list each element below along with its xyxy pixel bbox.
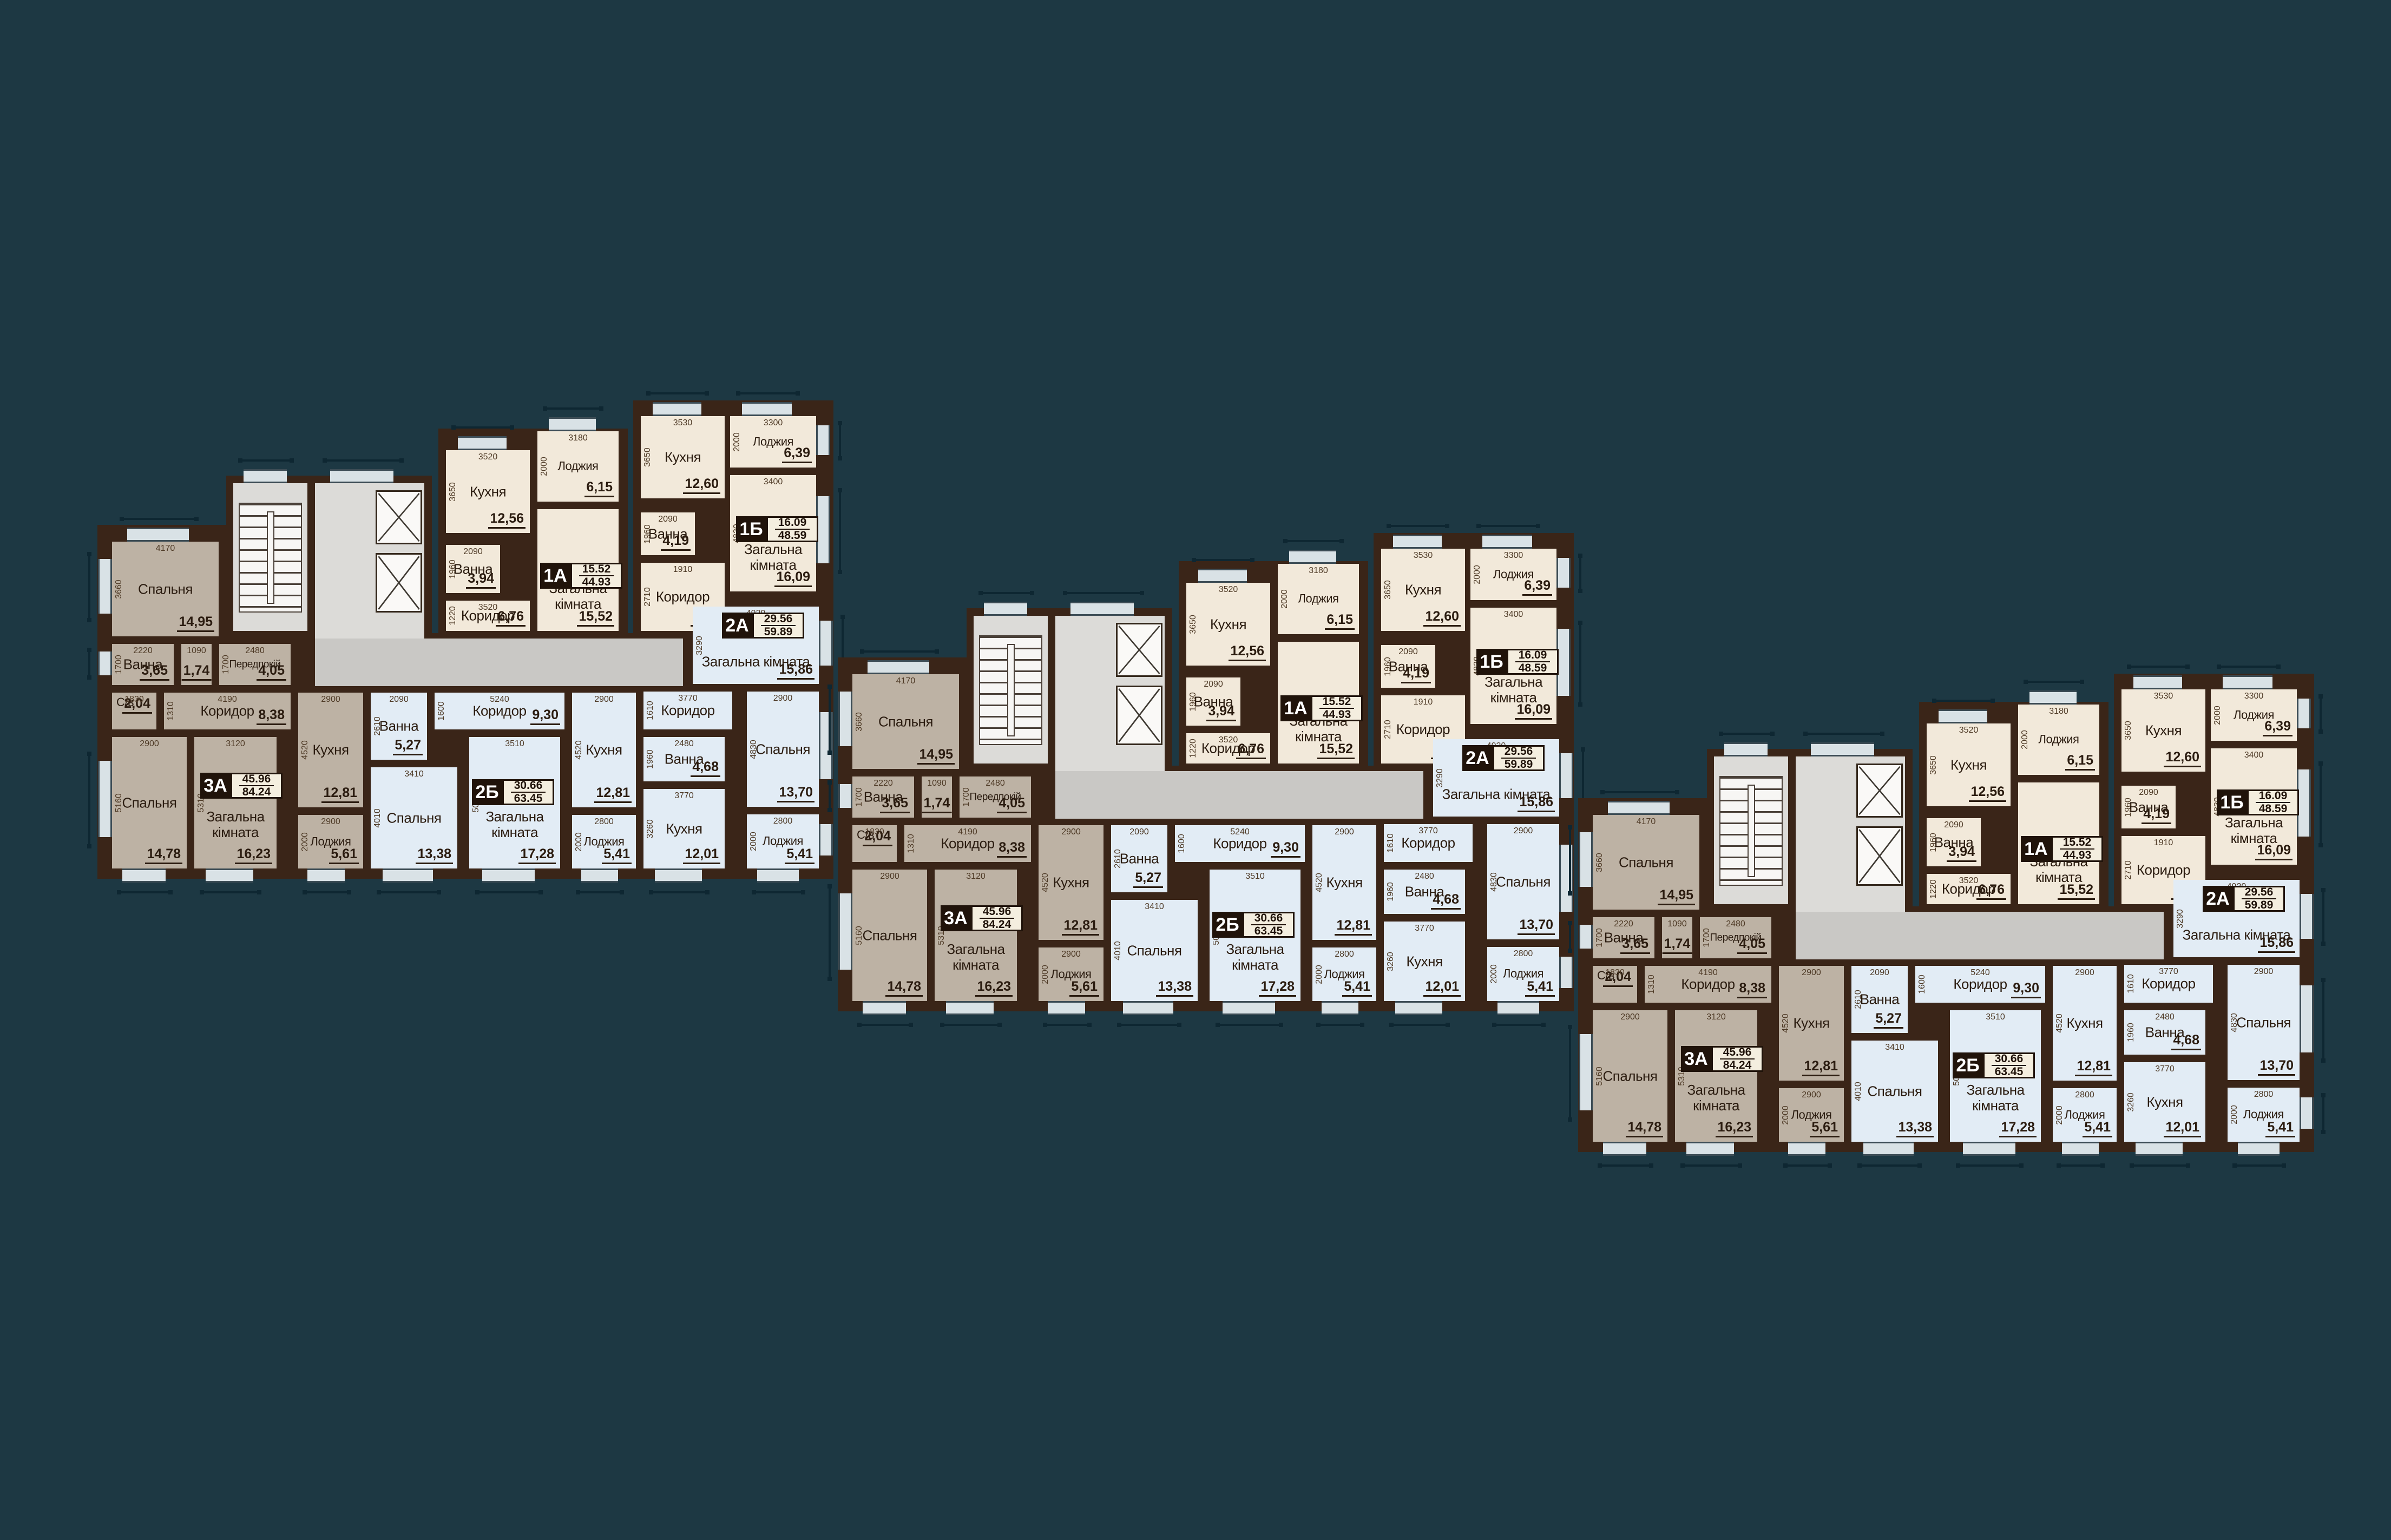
dimension-label: 4190 (958, 827, 977, 837)
living-area-value: 15.52 (2060, 837, 2095, 850)
elevator-shaft-icon (1116, 686, 1162, 745)
balcony-rail (1493, 1024, 1545, 1026)
window-glyph (946, 1001, 994, 1015)
dimension-label: 4170 (156, 544, 175, 554)
room-area-value: 4,19 (1401, 666, 1431, 683)
room-label: Спальня (1596, 1068, 1665, 1084)
dimension-label: 1220 (1188, 739, 1198, 758)
room-apt3a-loggia: Лоджия5,6129002000 (1039, 947, 1103, 1001)
total-area-value: 59.89 (2242, 899, 2277, 911)
dimension-label: 4190 (218, 695, 237, 705)
dimension-label: 2090 (1204, 680, 1223, 689)
dimension-label: 1310 (166, 701, 176, 721)
balcony-rail (2131, 1164, 2189, 1167)
window-glyph (1686, 1142, 1734, 1156)
elevator-shaft-icon (376, 553, 422, 613)
dimension-label: 1910 (673, 565, 693, 575)
dimension-label: 3400 (764, 477, 783, 487)
room-common-corridor (315, 639, 683, 686)
room-area-value: 6,39 (1522, 578, 1552, 596)
dimension-label: 2000 (1280, 589, 1290, 609)
apartment-areas: 16.0948.59 (766, 516, 818, 542)
room-label: Коридор (2128, 976, 2210, 991)
room-apt3a-bedroom-2: Спальня14,7829005160 (112, 737, 187, 868)
elevator-x-icon (377, 555, 421, 611)
apartment-type-label: 3А (1681, 1046, 1711, 1072)
dimension-label: 1910 (2154, 838, 2173, 848)
balcony-rail (1601, 791, 1678, 793)
room-apt2b-corridor: Коридор9,3052401600 (1915, 966, 2045, 1003)
dimension-label: 4520 (1781, 1013, 1791, 1033)
room-apt3a-entry-hall: Передпокій4,0524801700 (1700, 917, 1771, 958)
room-area-value: 15,52 (1317, 741, 1355, 759)
dimension-label: 3300 (764, 418, 783, 428)
room-label: Загальна кімната (1213, 941, 1297, 972)
room-apt2b-bath: Ванна5,2720902610 (1111, 825, 1167, 892)
window-glyph (2223, 675, 2272, 689)
window-glyph (819, 712, 833, 779)
dimension-label: 2710 (2124, 860, 2133, 880)
balcony-rail (1044, 1024, 1091, 1026)
dimension-label: 1700 (962, 787, 971, 807)
room-label: Спальня (2230, 1015, 2296, 1030)
room-area-value: 12,81 (321, 785, 359, 803)
dimension-label: 1700 (1702, 928, 1712, 947)
apartment-type-label: 1А (540, 563, 570, 589)
window-glyph (2029, 690, 2077, 705)
dimension-label: 1600 (437, 701, 446, 721)
dimension-label: 2090 (658, 515, 678, 524)
apartment-badge-1А: 1А15.5244.93 (1280, 695, 1363, 721)
dimension-label: 3660 (855, 712, 864, 732)
window-glyph (549, 417, 596, 431)
window-glyph (2136, 1142, 2183, 1156)
room-label: Коридор (2125, 862, 2202, 878)
dimension-label: 1700 (221, 655, 231, 674)
dimension-label: 3770 (674, 791, 694, 801)
dimension-label: 5240 (490, 695, 509, 705)
total-area-value: 63.45 (511, 793, 546, 805)
room-area-value: 4,68 (691, 759, 720, 777)
room-area-value: 5,41 (785, 846, 814, 864)
balcony-rail (118, 891, 172, 893)
window-glyph (1070, 602, 1134, 616)
balcony-rail (88, 553, 90, 621)
apartment-type-label: 2А (722, 613, 752, 639)
room-apt2a-corridor: Коридор37701610 (643, 692, 732, 729)
dimension-label: 2000 (2230, 1105, 2239, 1124)
apartment-areas: 15.5244.93 (1311, 695, 1363, 721)
room-area-value: 12,01 (2164, 1120, 2201, 1137)
dimension-label: 2000 (2213, 706, 2223, 725)
apartment-areas: 29.5659.89 (752, 613, 804, 639)
dimension-label: 3410 (404, 769, 424, 779)
total-area-value: 84.24 (1720, 1059, 1755, 1071)
balcony-rail (1933, 700, 1994, 702)
window-glyph (122, 868, 166, 883)
room-apt3a-bedroom-2: Спальня14,7829005160 (852, 870, 927, 1001)
dimension-label: 2480 (1415, 872, 1434, 881)
apartment-badge-2Б: 2Б30.6663.45 (1212, 912, 1295, 938)
room-area-value: 12,56 (1969, 784, 2006, 802)
room-apt3a-bath: Ванна3,6522201700 (1593, 917, 1654, 958)
window-glyph (757, 868, 799, 883)
apartment-badge-3А: 3А45.9684.24 (200, 773, 283, 799)
dimension-label: 2090 (1870, 968, 1889, 978)
window-glyph (2300, 985, 2314, 1052)
room-apt3a-wc: С/в2,041830 (1593, 966, 1637, 1003)
dimension-label: 1090 (1667, 919, 1687, 929)
dimension-label: 3120 (966, 872, 986, 881)
apartment-type-label: 2Б (472, 779, 502, 805)
room-apt2a-bedroom: Спальня13,7029004830 (1487, 824, 1559, 939)
room-area-value: 6,76 (496, 609, 526, 627)
room-stairwell (1714, 756, 1788, 904)
room-area-value: 3,65 (880, 795, 910, 813)
dimension-label: 3290 (2176, 909, 2185, 929)
dimension-label: 3530 (673, 418, 693, 428)
dimension-label: 3410 (1145, 902, 1164, 912)
dimension-label: 2900 (321, 695, 340, 705)
room-area-value: 16,09 (1515, 702, 1552, 720)
dimension-label: 1910 (1414, 697, 1433, 707)
window-glyph (1289, 550, 1336, 564)
room-apt3a-closet: 1,741090 (181, 644, 212, 685)
room-apt3a-bedroom-1: Спальня14,9541703660 (112, 542, 219, 636)
room-area-value: 12,56 (1229, 643, 1266, 661)
elevator-x-icon (1858, 765, 1901, 816)
room-area-value: 15,86 (777, 662, 814, 680)
dimension-label: 2710 (1383, 720, 1393, 739)
room-apt1a-kitchen: Кухня12,5635203650 (1927, 723, 2011, 806)
dimension-label: 1700 (114, 655, 124, 674)
dimension-label: 3660 (114, 580, 124, 599)
room-area-value: 1,74 (1663, 936, 1692, 954)
room-area-value: 8,38 (997, 840, 1027, 858)
balcony-rail (858, 1024, 912, 1026)
window-glyph (742, 402, 792, 416)
dimension-label: 2800 (2075, 1090, 2094, 1100)
balcony-rail (88, 649, 90, 679)
balcony-rail (1118, 1024, 1180, 1026)
apartment-type-label: 1Б (1476, 649, 1507, 675)
dimension-label: 2000 (1781, 1105, 1791, 1125)
balcony-rail (1858, 1164, 1921, 1167)
dimension-label: 4830 (749, 740, 759, 759)
dimension-label: 4520 (2055, 1013, 2065, 1033)
total-area-value: 48.59 (2256, 803, 2291, 815)
room-apt2a-bath: Ванна4,6824801960 (2124, 1010, 2205, 1055)
window-glyph (458, 436, 507, 450)
floor-plan-canvas: Спальня14,9541703660Ванна3,65222017001,7… (0, 0, 2391, 1540)
room-apt3a-loggia: Лоджия5,6129002000 (298, 815, 363, 868)
room-apt3a-corridor: Коридор8,3841901310 (1645, 966, 1771, 1003)
room-label: Загальна кімната (733, 541, 812, 572)
room-area-value: 14,95 (177, 614, 214, 632)
room-area-value: 1,74 (922, 795, 952, 813)
room-apt2b-bedroom: Спальня13,3834104010 (1851, 1041, 1938, 1142)
balcony-rail (324, 459, 402, 462)
room-area-value: 13,38 (1156, 979, 1193, 997)
dimension-label: 2000 (540, 457, 549, 476)
room-label: Кухня (1387, 953, 1462, 969)
balcony-rail (1388, 525, 1448, 527)
dimension-label: 1610 (646, 701, 655, 720)
window-glyph (1811, 742, 1874, 756)
room-area-value: 14,78 (145, 846, 182, 864)
room-apt3a-closet: 1,741090 (1662, 917, 1692, 958)
elevator-x-icon (1118, 624, 1161, 675)
room-area-value: 14,78 (1626, 1120, 1663, 1137)
dimension-label: 3650 (1188, 615, 1198, 634)
room-apt2a-loggia: Лоджия5,4128002000 (2228, 1088, 2300, 1142)
dimension-label: 2480 (674, 739, 694, 749)
room-area-value: 17,28 (1999, 1120, 2037, 1137)
dimension-label: 3520 (1219, 585, 1238, 595)
balcony-rail (980, 592, 1033, 594)
dimension-label: 2000 (1489, 964, 1499, 984)
balcony-rail (2058, 1164, 2104, 1167)
dimension-label: 3180 (568, 433, 588, 443)
dimension-label: 2000 (1473, 565, 1482, 584)
room-area-value: 13,38 (416, 846, 453, 864)
dimension-label: 2090 (389, 695, 409, 705)
room-label: Спальня (1855, 1083, 1934, 1099)
window-glyph (653, 402, 701, 416)
room-stairwell (233, 483, 307, 631)
total-area-value: 48.59 (1515, 662, 1551, 674)
dimension-label: 2000 (574, 832, 584, 852)
apartment-areas: 30.6663.45 (1243, 912, 1295, 938)
balcony-rail (239, 459, 293, 462)
dimension-label: 2900 (2254, 967, 2274, 977)
balcony-rail (201, 891, 260, 893)
room-label: Лоджия (541, 460, 615, 473)
room-label: Загальна кімната (198, 808, 273, 840)
balcony-rail (476, 891, 542, 893)
balcony-rail (839, 422, 841, 459)
dimension-label: 3260 (646, 819, 655, 839)
balcony-rail (1579, 555, 1581, 591)
room-apt1a-kitchen: Кухня12,5635203650 (1186, 583, 1270, 666)
dimension-label: 2900 (773, 694, 793, 703)
dimension-label: 4190 (1698, 968, 1718, 978)
window-glyph (863, 1001, 906, 1015)
dimension-label: 2090 (1129, 827, 1149, 837)
room-label: Спальня (116, 581, 214, 597)
room-apt3a-kitchen: Кухня12,8129004520 (1779, 966, 1844, 1081)
dimension-label: 2000 (1315, 965, 1324, 984)
room-common-corridor (1796, 912, 2164, 959)
dimension-label: 1960 (448, 560, 458, 579)
total-area-value: 63.45 (1992, 1066, 2027, 1078)
total-area-value: 63.45 (1251, 925, 1286, 937)
room-area-value: 6,39 (2263, 719, 2293, 736)
dimension-label: 2900 (140, 739, 159, 749)
dimension-label: 4010 (1854, 1082, 1863, 1101)
window-glyph (1123, 1001, 1173, 1015)
dimension-label: 3770 (678, 694, 698, 703)
dimension-label: 3120 (226, 739, 245, 749)
room-area-value: 13,70 (2258, 1058, 2295, 1076)
window-glyph (2300, 1097, 2314, 1129)
window-glyph (1579, 925, 1593, 949)
room-stairwell (974, 616, 1048, 764)
room-label: Кухня (2127, 1094, 2202, 1110)
dimension-label: 2610 (373, 716, 383, 736)
elevator-shaft-icon (1856, 826, 1903, 886)
dimension-label: 2480 (2155, 1012, 2175, 1022)
dimension-label: 4010 (1113, 941, 1123, 960)
window-glyph (1788, 1142, 1826, 1156)
dimension-label: 1830 (1605, 968, 1625, 978)
balcony-rail (1569, 826, 1571, 894)
room-apt1a-corridor: Коридор6,7635201220 (1186, 733, 1270, 764)
dimension-label: 4170 (1637, 817, 1656, 827)
total-area-value: 84.24 (980, 919, 1015, 931)
balcony-rail (829, 885, 831, 980)
room-label: Спальня (1597, 854, 1695, 870)
apartment-areas: 30.6663.45 (502, 779, 554, 805)
room-area-value: 16,23 (975, 979, 1013, 997)
room-area-value: 12,81 (2075, 1058, 2112, 1076)
window-glyph (581, 868, 618, 883)
balcony-rail (2218, 666, 2280, 668)
dimension-label: 4520 (1315, 873, 1324, 892)
room-area-value: 6,39 (782, 445, 812, 463)
room-area-value: 5,61 (1810, 1120, 1840, 1137)
elevator-x-icon (1858, 828, 1901, 884)
room-apt2b-loggia: Лоджия5,4128002000 (572, 815, 636, 868)
balcony-rail (2320, 695, 2322, 732)
window-glyph (244, 469, 286, 483)
room-area-value: 4,05 (997, 795, 1027, 813)
room-area-value: 5,61 (1069, 979, 1099, 997)
dimension-label: 1960 (646, 749, 655, 769)
room-apt2b-bedroom: Спальня13,3834104010 (371, 767, 457, 868)
room-area-value: 3,65 (1620, 936, 1650, 954)
room-area-value: 5,27 (1133, 870, 1163, 888)
window-glyph (984, 602, 1027, 616)
room-apt3a-bedroom-1: Спальня14,9541703660 (1593, 815, 1699, 910)
stairs-rail (1007, 644, 1015, 736)
room-area-value: 5,27 (393, 738, 423, 755)
room-area-value: 9,30 (530, 707, 560, 725)
room-common-corridor (1055, 771, 1423, 819)
room-area-value: 12,81 (1335, 918, 1372, 936)
room-area-value: 4,19 (661, 533, 691, 551)
apartment-areas: 16.0948.59 (2247, 789, 2299, 815)
room-apt1b-bath: Ванна4,1920901960 (2121, 786, 2176, 828)
window-glyph (98, 559, 112, 614)
room-apt2b-kitchen: Кухня12,8129004520 (572, 693, 636, 807)
room-area-value: 14,95 (917, 747, 955, 765)
dimension-label: 1960 (643, 524, 653, 544)
apartment-type-label: 3А (941, 905, 971, 931)
room-area-value: 13,38 (1896, 1120, 1934, 1137)
elevator-shaft-icon (1116, 623, 1162, 677)
room-area-value: 3,94 (1947, 844, 1976, 862)
room-apt1a-bath: Ванна3,9420901960 (446, 545, 500, 593)
apartment-badge-1Б: 1Б16.0948.59 (2217, 789, 2299, 815)
room-apt3a-wc: С/в2,041830 (112, 693, 156, 729)
dimension-label: 3510 (505, 739, 524, 749)
window-glyph (838, 893, 852, 970)
apartment-type-label: 1Б (2217, 789, 2247, 815)
room-apt1b-kitchen: Кухня12,6035303650 (1381, 549, 1465, 631)
apartment-type-label: 3А (200, 773, 231, 799)
total-area-value: 44.93 (579, 576, 614, 588)
dimension-label: 3180 (2049, 707, 2068, 716)
room-apt2a-loggia: Лоджия5,4128002000 (747, 814, 819, 868)
room-area-value: 15,86 (1518, 794, 1555, 812)
apartment-badge-1Б: 1Б16.0948.59 (736, 516, 818, 542)
balcony-rail (1217, 1024, 1282, 1026)
dimension-label: 2900 (1061, 827, 1081, 837)
dimension-label: 1310 (1647, 975, 1657, 994)
apartment-badge-2Б: 2Б30.6663.45 (1953, 1052, 2035, 1078)
balcony-rail (941, 1024, 1000, 1026)
room-area-value: 12,60 (683, 476, 720, 494)
dimension-label: 4830 (1489, 872, 1499, 892)
window-glyph (206, 868, 253, 883)
apartment-badge-2Б: 2Б30.6663.45 (472, 779, 554, 805)
room-label: Кухня (647, 821, 721, 837)
room-area-value: 8,38 (257, 707, 286, 725)
room-area-value: 5,41 (2083, 1120, 2112, 1137)
window-glyph (1393, 535, 1442, 549)
balcony-rail (2234, 1164, 2285, 1167)
room-apt2b-bath: Ванна5,2720902610 (1851, 966, 1908, 1033)
dimension-label: 2900 (1802, 1090, 1821, 1100)
living-area-value: 30.66 (1251, 912, 1286, 925)
window-glyph (330, 469, 393, 483)
room-label: Спальня (750, 741, 816, 757)
room-area-value: 15,52 (577, 609, 614, 627)
room-label: Лоджия (1281, 593, 1356, 606)
room-apt2b-bath: Ванна5,2720902610 (371, 693, 427, 760)
room-label: Кухня (1190, 616, 1267, 632)
dimension-label: 4520 (574, 740, 584, 760)
dimension-label: 1830 (865, 827, 884, 837)
balcony-rail (304, 891, 350, 893)
living-area-value: 16.09 (2256, 790, 2291, 803)
room-area-value: 4,68 (1431, 892, 1461, 910)
window-glyph (1559, 845, 1573, 912)
dimension-label: 1960 (1386, 882, 1396, 901)
room-apt2a-bedroom: Спальня13,7029004830 (747, 692, 819, 807)
dimension-label: 2000 (2020, 730, 2030, 749)
stairs-rail (267, 511, 274, 604)
balcony-rail (829, 686, 831, 754)
room-apt3a-bedroom-1: Спальня14,9541703660 (852, 674, 959, 769)
dimension-label: 2800 (1335, 950, 1354, 959)
window-glyph (1559, 957, 1573, 988)
total-area-value: 48.59 (775, 530, 810, 542)
dimension-label: 1610 (1386, 833, 1396, 853)
room-area-value: 16,23 (1716, 1120, 1753, 1137)
living-area-value: 15.52 (1319, 696, 1355, 709)
room-area-value: 13,70 (777, 785, 814, 802)
room-apt2a-corridor: Коридор37701610 (2124, 965, 2213, 1003)
dimension-label: 2900 (2075, 968, 2094, 978)
dimension-label: 3650 (448, 482, 458, 502)
balcony-rail (2320, 762, 2322, 846)
balcony-rail (753, 891, 805, 893)
dimension-label: 1960 (1383, 657, 1393, 676)
dimension-label: 2610 (1113, 849, 1123, 868)
living-area-value: 15.52 (579, 563, 614, 576)
